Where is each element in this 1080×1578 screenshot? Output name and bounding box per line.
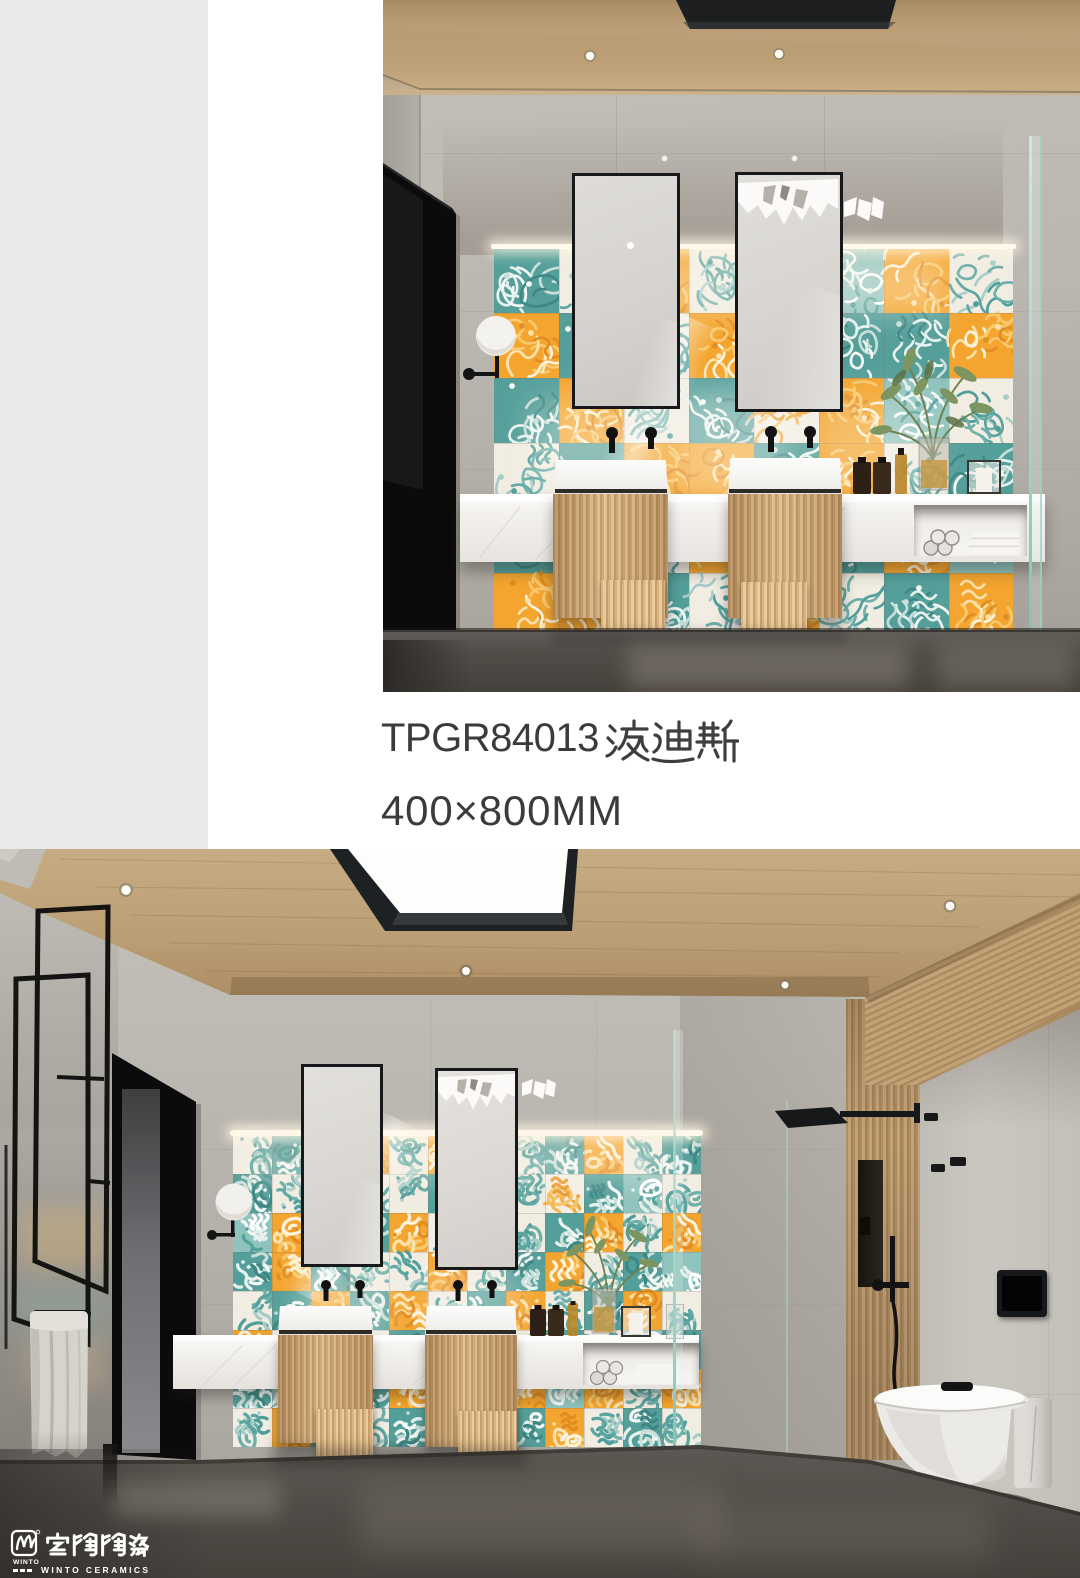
- svg-text:WINTO: WINTO: [13, 1559, 40, 1566]
- svg-text:WINTO CERAMICS: WINTO CERAMICS: [41, 1565, 150, 1575]
